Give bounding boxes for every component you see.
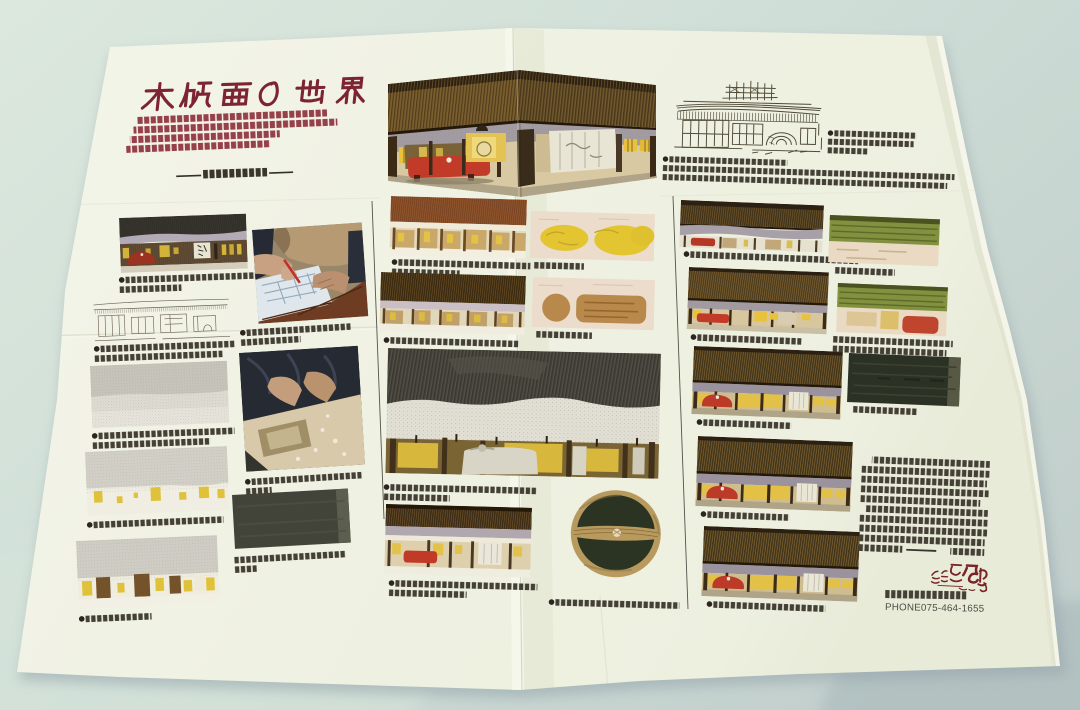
svg-text:PHONE075-464-1655: PHONE075-464-1655 (885, 602, 985, 615)
